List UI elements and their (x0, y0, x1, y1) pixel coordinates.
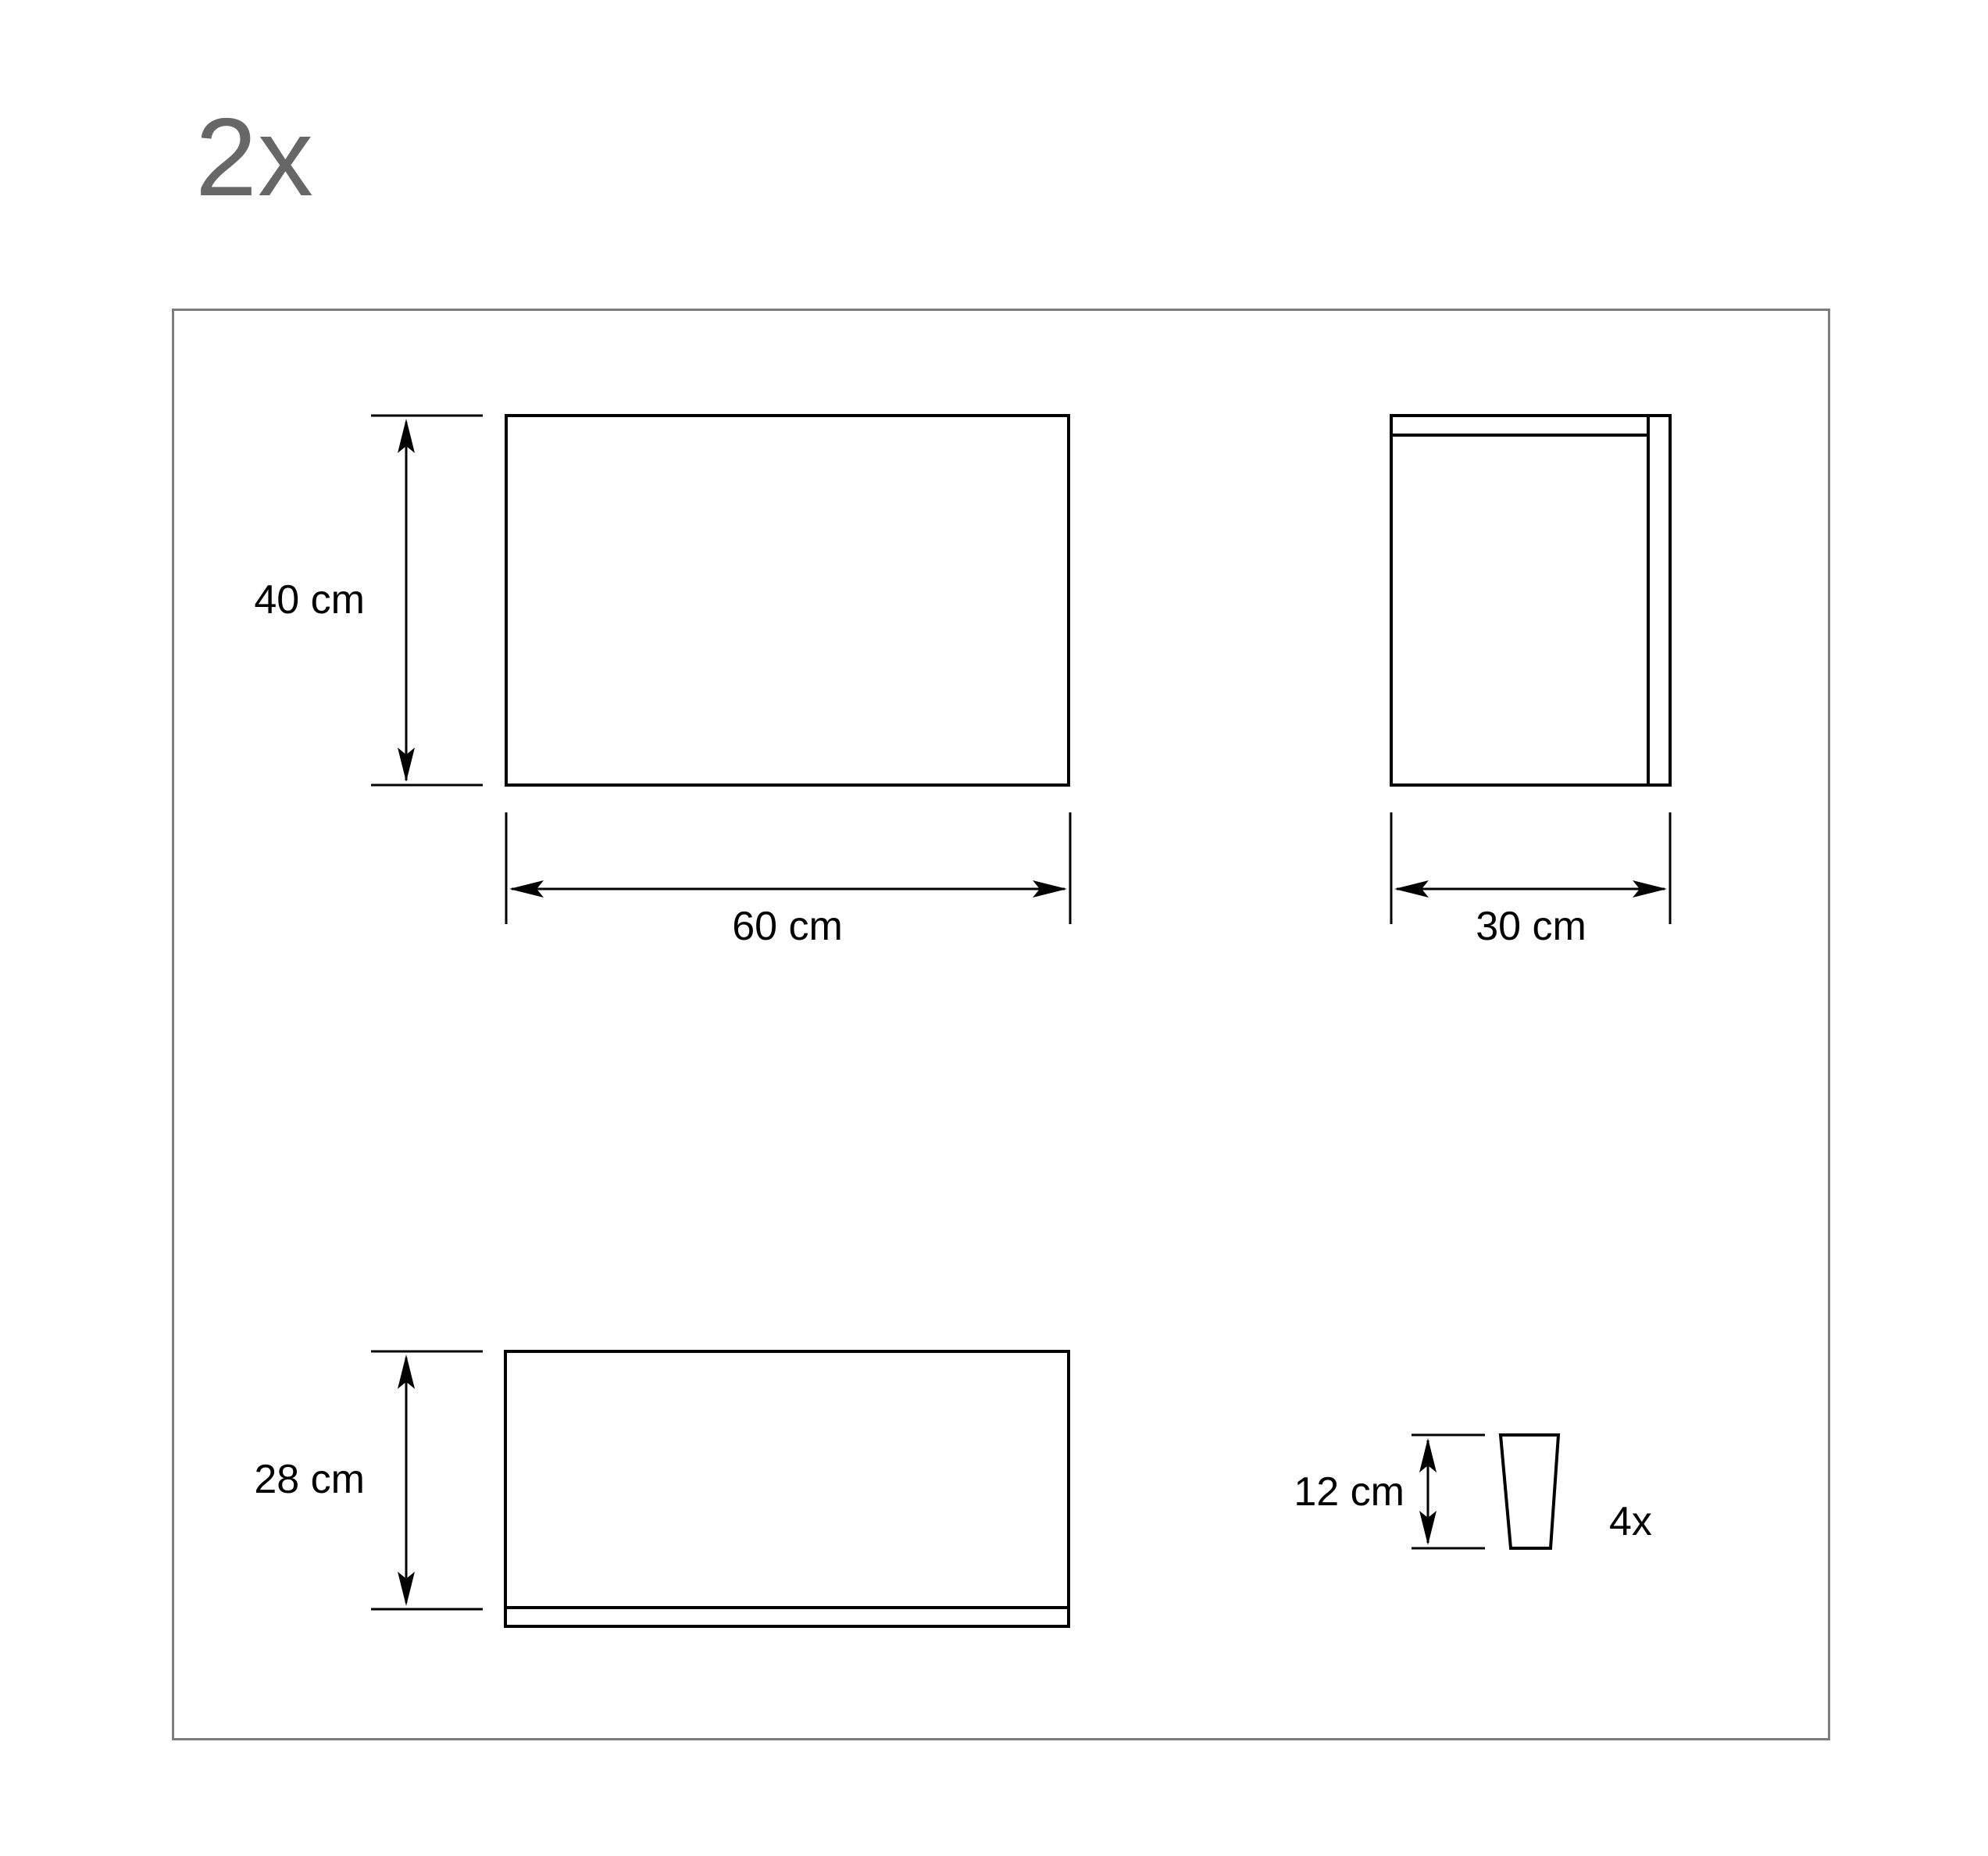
side-view-outline (1391, 416, 1670, 785)
instruction-page: 2x (0, 0, 1988, 1856)
front-width-label: 60 cm (670, 906, 905, 947)
leg-count-label: 4x (1609, 1501, 1652, 1542)
back-panel-outline (505, 1351, 1069, 1626)
leg-outline (1501, 1435, 1558, 1548)
back-panel-height-label: 28 cm (187, 1459, 365, 1500)
side-width-label: 30 cm (1414, 906, 1648, 947)
dimension-drawing (0, 0, 1988, 1856)
front-height-label: 40 cm (187, 580, 365, 620)
front-view-outline (506, 416, 1069, 785)
leg-height-label: 12 cm (1231, 1472, 1404, 1512)
